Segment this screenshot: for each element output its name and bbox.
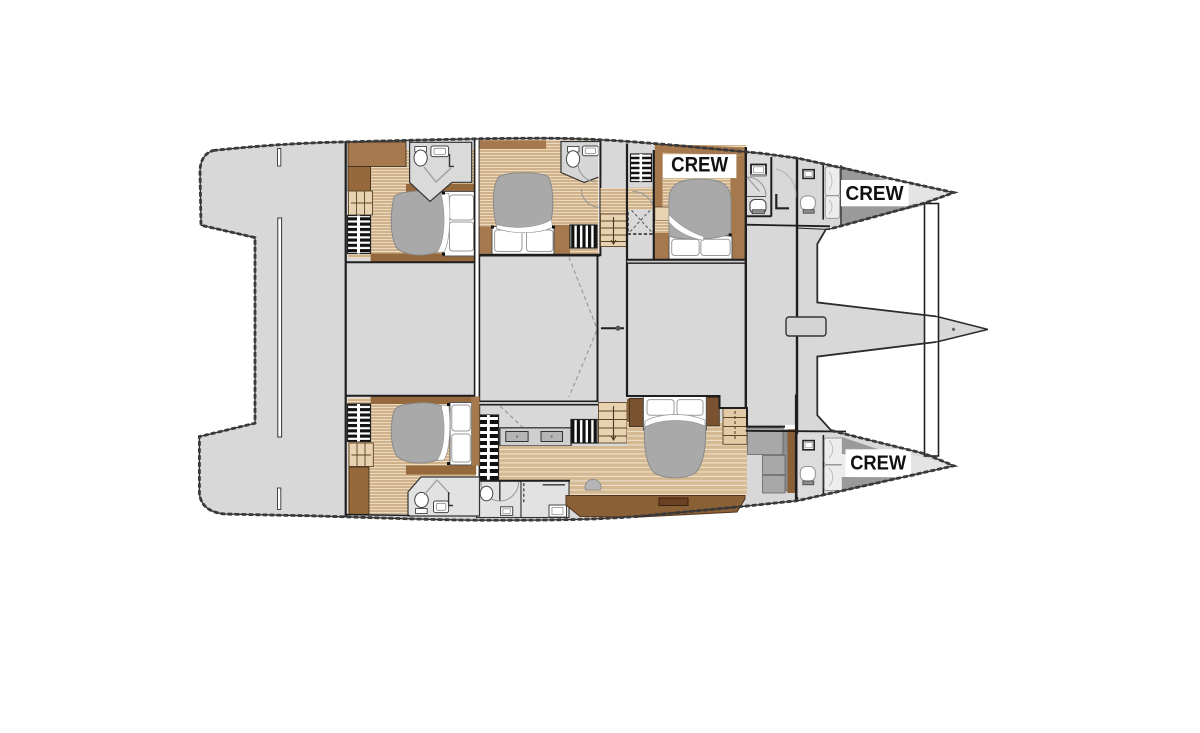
svg-text:CREW: CREW (846, 183, 904, 205)
svg-text:CREW: CREW (671, 154, 728, 177)
svg-text:CREW: CREW (850, 452, 906, 474)
